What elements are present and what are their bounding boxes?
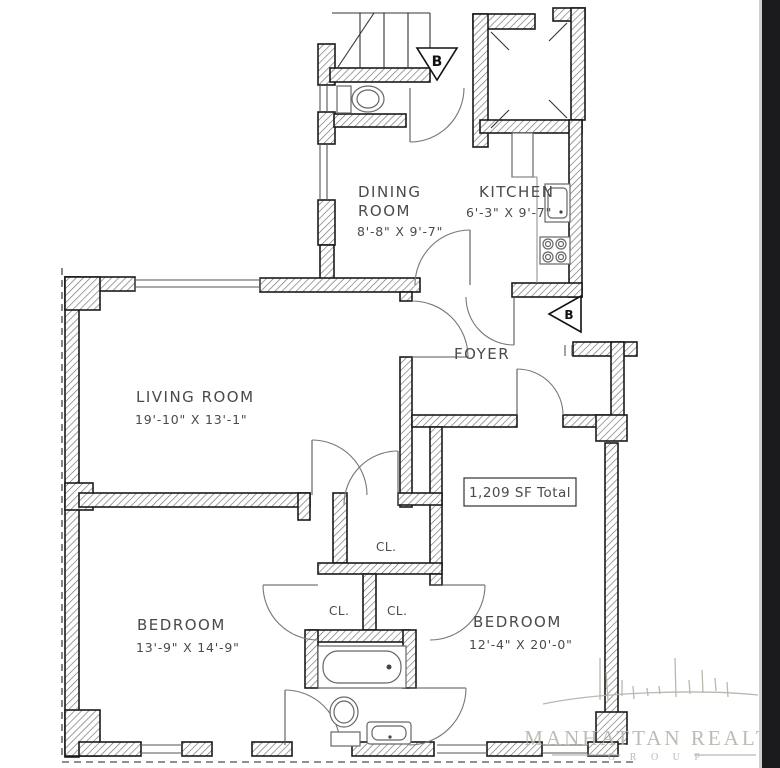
toilet-upper (337, 86, 384, 113)
total-area-label: 1,209 SF Total (469, 485, 571, 501)
watermark-group: G R O U P (608, 752, 706, 763)
bedroom-left-dims: 13'-9" X 14'-9" (136, 640, 240, 655)
floor-plan: B B DINING ROOM 8'-8" X 9'-7" KITCHEN 6'… (0, 0, 780, 768)
dining-room-dims: 8'-8" X 9'-7" (357, 224, 443, 239)
closet-upper-label: CL. (376, 540, 396, 554)
section-marker-side: B (549, 296, 581, 332)
right-edge-strip (759, 0, 780, 768)
living-room-label: LIVING ROOM (136, 388, 255, 406)
shaft-corner-marks (491, 23, 567, 128)
kitchen-dims: 6'-3" X 9'-7" (466, 205, 552, 220)
bedroom-right-label: BEDROOM (473, 613, 562, 631)
bedroom-right-dims: 12'-4" X 20'-0" (469, 637, 573, 652)
refrigerator (512, 133, 533, 177)
total-area-box: 1,209 SF Total (464, 478, 576, 506)
watermark: MANHATTAN REALTY G R O U P (524, 658, 780, 763)
dining-room-label-line1: DINING (358, 183, 421, 201)
stairs (332, 13, 430, 68)
section-marker-top-label: B (432, 54, 443, 70)
closet-right-label: CL. (387, 604, 407, 618)
bathroom-sink (367, 722, 411, 744)
bedroom-left-label: BEDROOM (137, 616, 226, 634)
dining-room-label-line2: ROOM (358, 202, 411, 220)
section-marker-side-label: B (564, 308, 573, 322)
stove (540, 237, 570, 264)
foyer-label: FOYER (454, 345, 510, 363)
floorplan-page: B B DINING ROOM 8'-8" X 9'-7" KITCHEN 6'… (0, 0, 780, 768)
living-room-dims: 19'-10" X 13'-1" (135, 412, 247, 427)
bathtub (318, 646, 406, 688)
closet-left-label: CL. (329, 604, 349, 618)
watermark-name: MANHATTAN REALTY (524, 726, 780, 750)
toilet-lower (330, 697, 360, 746)
kitchen-label: KITCHEN (479, 183, 555, 201)
